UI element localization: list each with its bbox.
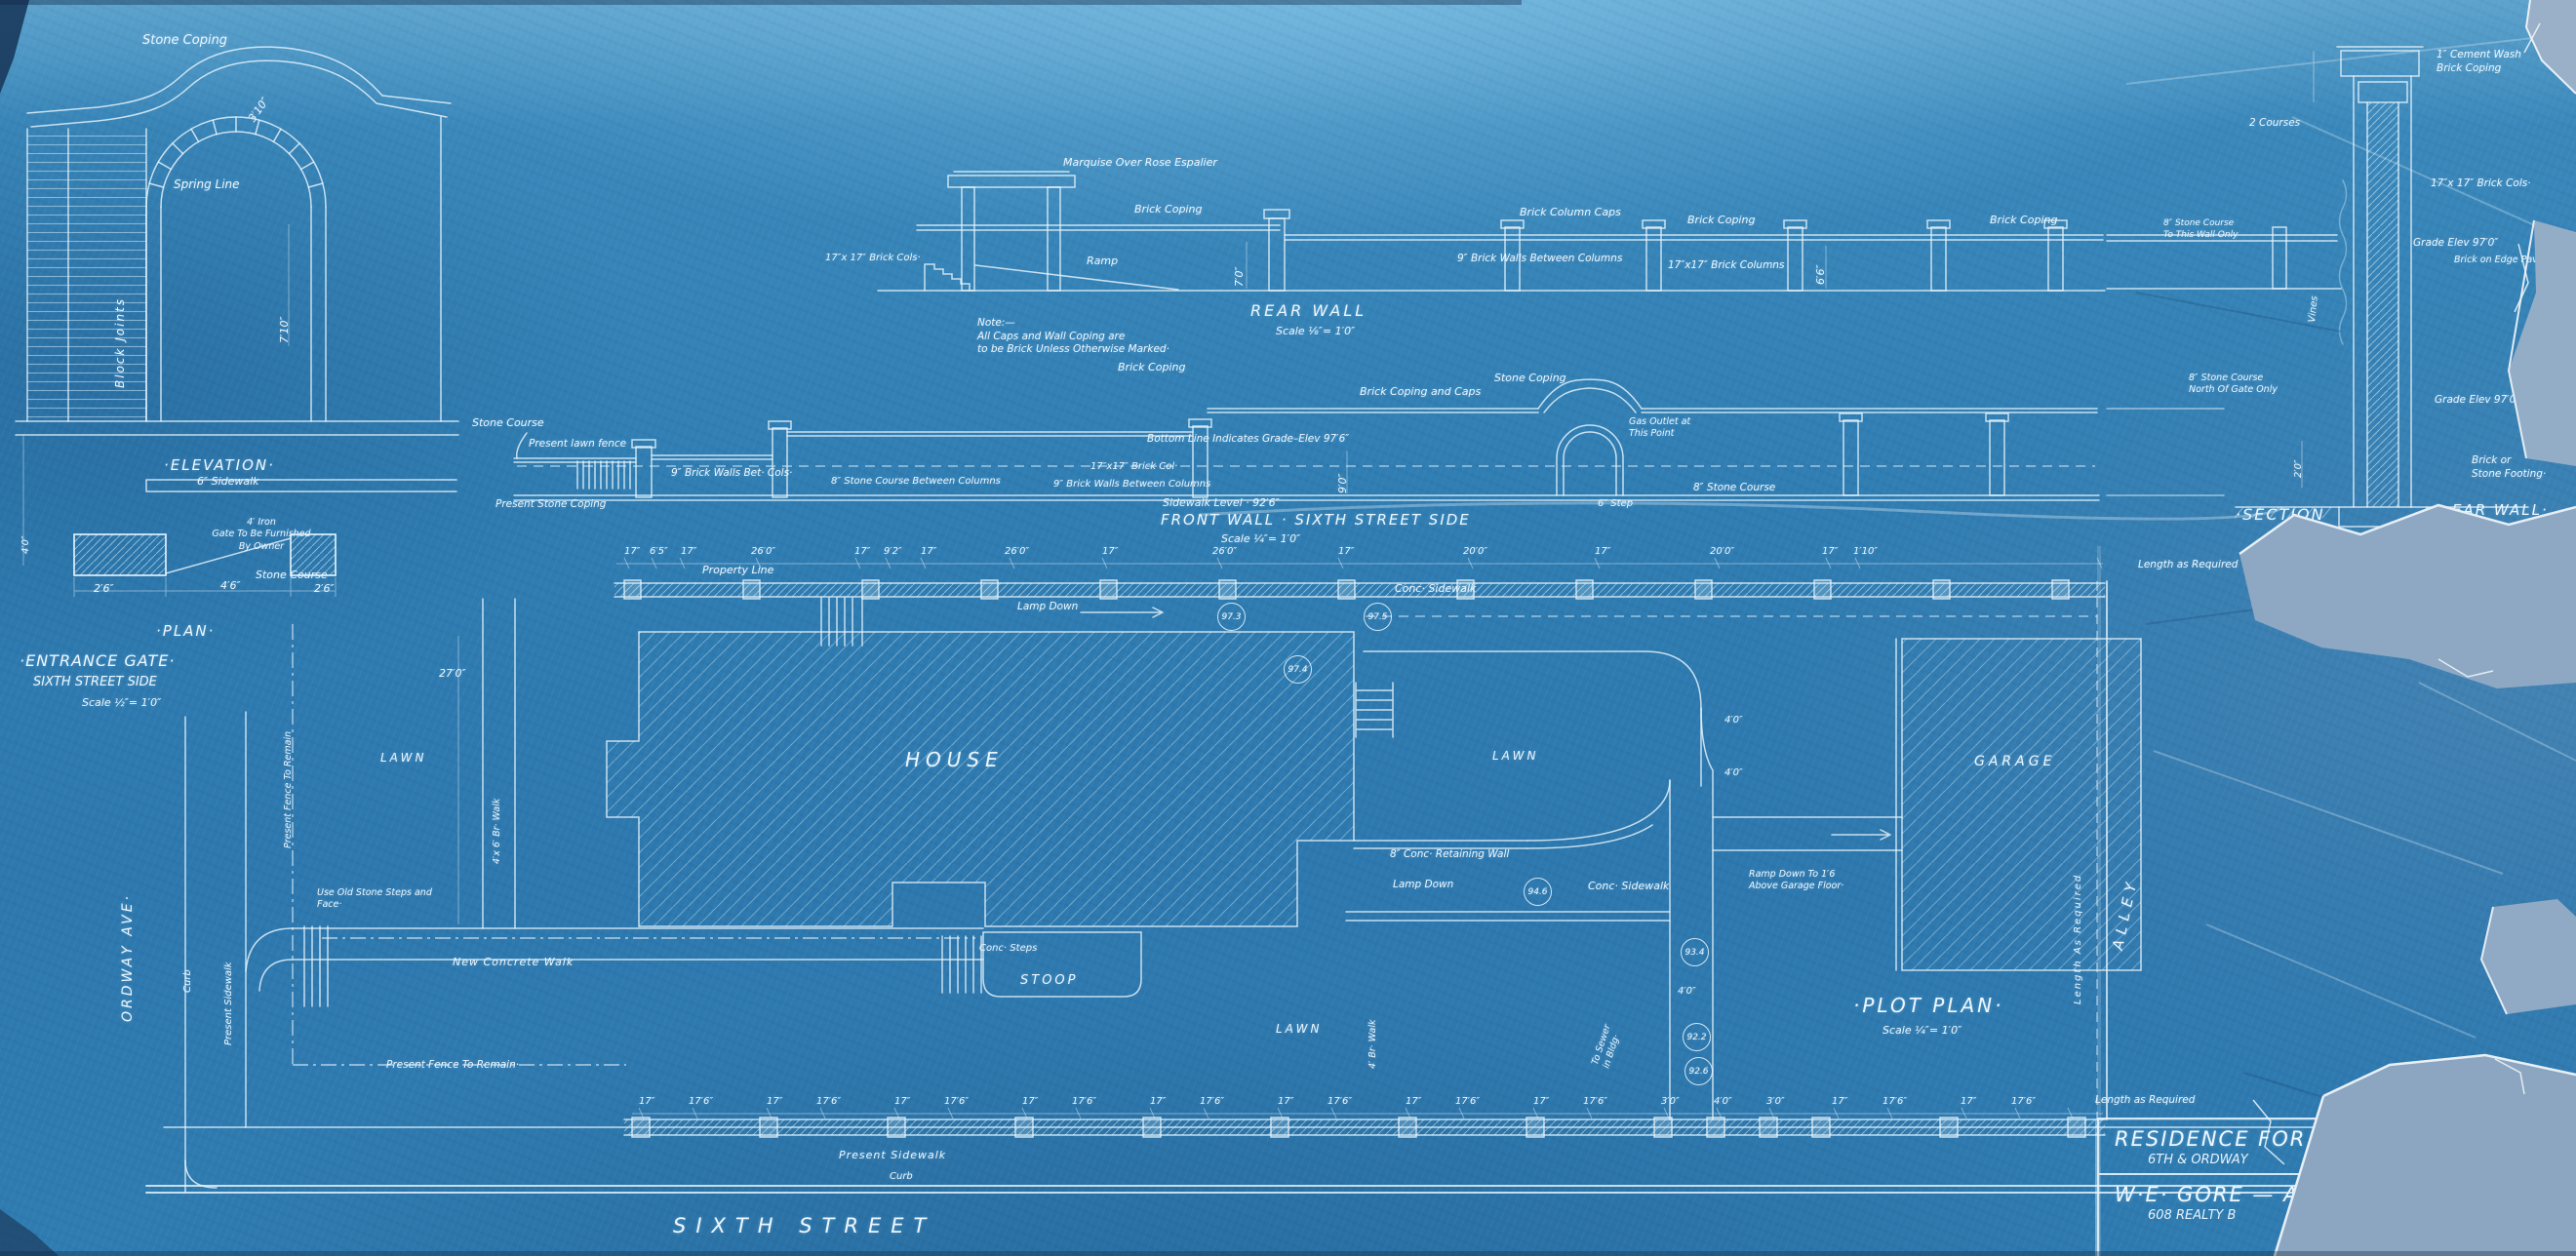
rearwall-scale: Scale ⅛″= 1′0″	[1276, 325, 1355, 338]
plot-bottom-dim-13: 17′6″	[1455, 1096, 1480, 1107]
plot-dim-4-0-c: 4′0″	[1678, 985, 1696, 998]
gate-dim-4-6: 4′6″	[220, 579, 241, 593]
plot-top-dim-13: 20′0″	[1710, 546, 1734, 557]
plot-top-dim-8: 17″	[1102, 546, 1118, 557]
gate-label-sidewalk: 6″ Sidewalk	[197, 475, 259, 489]
frontwall-label-present-fence: Present lawn fence	[529, 438, 626, 451]
plot-top-dim-9: 26′0″	[1212, 546, 1237, 557]
frontwall-label-sidewalk-level: Sidewalk Level · 92′6″	[1163, 496, 1280, 510]
gate-label-block-joints: Block Joints	[113, 297, 129, 388]
plot-bottom-dim-22: 17′6″	[2011, 1096, 2036, 1107]
plot-bottom-dim-9: 17′6″	[1200, 1096, 1224, 1107]
plot-dim-4-0-a: 4′0″	[1724, 714, 1743, 726]
gate-title: ·ENTRANCE GATE·	[20, 651, 175, 672]
project-title: RESIDENCE FOR	[2115, 1127, 2372, 1151]
rearwall-label-brick-coping-left: Brick Coping	[1134, 203, 1202, 216]
plot-label-lawn-mid: LAWN	[1492, 749, 1539, 765]
spot-elevation-0: 97.3	[1217, 603, 1246, 631]
plot-label-conc-sidewalk-mid: Conc· Sidewalk	[1588, 880, 1669, 893]
section-label-grade-elev-upper: Grade Elev 97′0″	[2413, 237, 2498, 251]
plot-label-walk-left-v: 4′x 6′ Br· Walk	[492, 799, 503, 864]
plot-top-dim-12: 17″	[1595, 546, 1610, 557]
frontwall-label-grade-note: Bottom Line Indicates Grade–Elev 97′6″	[1147, 433, 1349, 447]
plot-bottom-dim-6: 17″	[1022, 1096, 1038, 1107]
street-label-ordway: ORDWAY AVE·	[119, 893, 137, 1022]
plot-bottom-dim-16: 3′0″	[1661, 1096, 1680, 1107]
plot-bottom-dim-19: 17″	[1832, 1096, 1847, 1107]
spot-elevation-1: 97.4	[1284, 655, 1312, 684]
frontwall-scale: Scale ¼″= 1′0″	[1221, 532, 1300, 546]
plot-top-dim-6: 17″	[921, 546, 936, 557]
street-label-ordway-curb: Curb	[181, 969, 194, 993]
plot-label-retaining-wall: 8″ Conc· Retaining Wall	[1390, 848, 1509, 862]
section-title-left: ·SECTION	[2236, 505, 2325, 526]
plot-bottom-dim-12: 17″	[1406, 1096, 1421, 1107]
rearwall-label-brick-coping-right: Brick Coping	[1990, 214, 2057, 227]
plot-bottom-dim-4: 17″	[894, 1096, 910, 1107]
plot-label-lamp-down-top: Lamp Down	[1017, 601, 1078, 614]
gate-dim-2-6-right: 2′6″	[314, 582, 335, 596]
rearwall-label-column-caps: Brick Column Caps	[1520, 206, 1621, 219]
architect-address: 608 REALTY B	[2148, 1208, 2372, 1223]
title-block-architect-row: W·E· GORE — ARCH 608 REALTY B	[2099, 1175, 2384, 1229]
plot-top-dim-4: 17″	[854, 546, 870, 557]
plot-bottom-dim-3: 17′6″	[816, 1096, 841, 1107]
frontwall-label-17x17-cols: 17″x17″ Brick Col·	[1090, 460, 1177, 473]
section-label-stone-course-a: 8″ Stone Course To This Wall Only	[2163, 218, 2238, 241]
frontwall-label-9in-walls: 9″ Brick Walls Bet· Cols·	[671, 467, 792, 481]
frontwall-label-stone-course: Stone Course	[472, 416, 544, 430]
spot-elevation-5: 92.2	[1683, 1023, 1711, 1051]
gate-label-stone-course: Stone Course	[256, 569, 328, 582]
plot-top-dim-0: 17″	[624, 546, 640, 557]
spot-elevation-2: 97.5	[1364, 603, 1392, 631]
plot-label-fence-remain: Present Fence To Remain·	[386, 1059, 519, 1073]
plot-label-lawn-bottom: LAWN	[1276, 1022, 1323, 1038]
plot-bottom-dim-21: 17″	[1961, 1096, 1976, 1107]
frontwall-label-gas: Gas Outlet at This Point	[1629, 416, 1690, 441]
plot-label-conc-steps: Conc· Steps	[979, 942, 1037, 955]
gate-dim-4-0: 4′0″	[20, 535, 32, 554]
frontwall-label-brick-coping: Brick Coping	[1118, 361, 1185, 374]
gate-subtitle: SIXTH STREET SIDE	[33, 675, 157, 691]
section-label-cement-wash: 1″ Cement Wash Brick Coping	[2437, 49, 2521, 75]
project-location: 6TH & ORDWAY	[2148, 1153, 2372, 1167]
gate-label-plan: ·PLAN·	[156, 622, 215, 642]
rearwall-label-ramp: Ramp	[1087, 255, 1118, 268]
plot-bottom-dim-18: 3′0″	[1766, 1096, 1785, 1107]
gate-label-elevation: ·ELEVATION·	[164, 456, 275, 476]
rearwall-label-17x17-cols: 17″x17″ Brick Columns	[1668, 259, 1784, 273]
street-label-sixth-street: SIXTH STREET	[673, 1213, 935, 1239]
title-block-project-row: RESIDENCE FOR 6TH & ORDWAY	[2099, 1119, 2384, 1175]
frontwall-label-stone-coping: Stone Coping	[1494, 372, 1566, 385]
frontwall-label-9in-between: 9″ Brick Walls Between Columns	[1053, 478, 1210, 491]
street-label-curb: Curb	[890, 1170, 913, 1183]
annotation-layer: Stone Coping3′10″Spring LineBlock Joints…	[0, 0, 2576, 1256]
gate-dim-2-6-left: 2′6″	[94, 582, 114, 596]
rearwall-label-17x17-left: 17″x 17″ Brick Cols·	[825, 252, 921, 264]
frontwall-label-step: 6″ Step	[1598, 497, 1633, 510]
plot-top-dim-11: 20′0″	[1463, 546, 1487, 557]
frontwall-label-8in-course-b: 8″ Stone Course	[1693, 482, 1775, 495]
section-label-vines: Vines	[2306, 295, 2321, 324]
plot-label-lamp-down-mid: Lamp Down	[1393, 879, 1453, 892]
plot-bottom-dim-8: 17″	[1150, 1096, 1166, 1107]
rearwall-label-9in-walls: 9″ Brick Walls Between Columns	[1457, 253, 1622, 266]
plot-dim-4-0-b: 4′0″	[1724, 766, 1743, 779]
plot-bottom-dim-10: 17″	[1278, 1096, 1293, 1107]
plot-label-conc-sidewalk-top: Conc· Sidewalk	[1395, 582, 1476, 596]
plot-label-ramp-garage: Ramp Down To 1′6 Above Garage Floor·	[1749, 869, 1843, 893]
plot-bottom-dim-20: 17′6″	[1882, 1096, 1907, 1107]
frontwall-title: FRONT WALL · SIXTH STREET SIDE	[1161, 511, 1471, 530]
plot-bottom-dim-14: 17″	[1533, 1096, 1549, 1107]
plot-bottom-dim-17: 4′0″	[1714, 1096, 1732, 1107]
plot-label-length-required-top: Length as Required	[2138, 559, 2238, 572]
rearwall-title: REAR WALL	[1250, 301, 1367, 322]
plot-bottom-dim-1: 17′6″	[689, 1096, 713, 1107]
title-block: RESIDENCE FOR 6TH & ORDWAY W·E· GORE — A…	[2097, 1118, 2386, 1256]
spot-elevation-6: 92.6	[1684, 1057, 1713, 1085]
gate-arch-dim-3-10: 3′10″	[246, 95, 273, 125]
gate-label-stone-coping: Stone Coping	[142, 33, 227, 50]
plot-top-dim-5: 9′2″	[884, 546, 902, 557]
plot-label-property-line: Property Line	[702, 564, 773, 577]
section-label-grade-elev: Grade Elev 97′0″	[2435, 394, 2519, 408]
plot-bottom-dim-7: 17′6″	[1072, 1096, 1096, 1107]
rearwall-label-brick-coping-mid: Brick Coping	[1687, 214, 1755, 227]
gate-label-spring-line: Spring Line	[174, 177, 240, 193]
rearwall-note: Note:— All Caps and Wall Coping are to b…	[977, 317, 1169, 357]
plot-label-new-walk: New Concrete Walk	[453, 956, 574, 969]
section-label-2-courses: 2 Courses	[2249, 117, 2300, 131]
frontwall-label-present-coping: Present Stone Coping	[495, 498, 606, 512]
plot-label-lawn-left: LAWN	[380, 751, 427, 766]
section-label-footing: Brick or Stone Footing·	[2472, 454, 2546, 481]
architect-name: W·E· GORE — ARCH	[2115, 1183, 2372, 1206]
plot-top-dim-7: 26′0″	[1005, 546, 1029, 557]
section-label-brick-edge: Brick on Edge Paving·	[2454, 255, 2555, 266]
plot-top-dim-10: 17″	[1338, 546, 1354, 557]
plot-label-alley: ALLEY	[2109, 876, 2143, 952]
section-label-stone-course-b: 8″ Stone Course North Of Gate Only	[2189, 373, 2278, 397]
plot-bottom-dim-5: 17′6″	[944, 1096, 969, 1107]
blueprint-sheet: Stone Coping3′10″Spring LineBlock Joints…	[0, 0, 2576, 1256]
street-label-present-sidewalk: Present Sidewalk	[839, 1149, 946, 1162]
gate-scale: Scale ½″= 1′0″	[82, 696, 161, 710]
frontwall-label-coping-caps: Brick Coping and Caps	[1360, 385, 1481, 399]
plot-top-dim-1: 6′5″	[650, 546, 668, 557]
gate-note-gate: 4′ Iron Gate To Be Furnished By Owner	[183, 517, 339, 553]
plot-label-length-required-v: Length As Required	[2072, 874, 2084, 1004]
plot-bottom-dim-2: 17″	[767, 1096, 782, 1107]
plot-top-dim-15: 1′10″	[1853, 546, 1878, 557]
section-label-17x17: 17″x 17″ Brick Cols·	[2431, 177, 2531, 191]
gate-dim-7-10: 7′10″	[278, 316, 292, 343]
plot-top-dim-14: 17″	[1822, 546, 1838, 557]
plot-top-dim-2: 17″	[681, 546, 696, 557]
spot-elevation-3: 94.6	[1524, 878, 1552, 906]
plot-label-house: HOUSE	[905, 747, 1004, 772]
street-label-ordway-sidewalk: Present Sidewalk	[222, 962, 235, 1045]
plot-top-dim-3: 26′0″	[751, 546, 775, 557]
plot-bottom-dim-0: 17″	[639, 1096, 654, 1107]
plot-bottom-dim-15: 17′6″	[1583, 1096, 1607, 1107]
frontwall-label-8in-course: 8″ Stone Course Between Columns	[831, 475, 1001, 488]
spot-elevation-4: 93.4	[1681, 938, 1709, 966]
frontwall-dim-9-0: 9′0″	[1336, 473, 1350, 493]
section-title-right: EAR WALL·	[2452, 501, 2549, 521]
plot-label-stoop: STOOP	[1020, 973, 1079, 990]
plot-bottom-dim-11: 17′6″	[1328, 1096, 1352, 1107]
plot-dim-27-0: 27′0″	[439, 667, 466, 681]
plot-label-to-sewer: To Sewer in Bldg·	[1590, 1023, 1626, 1070]
plot-title: ·PLOT PLAN·	[1853, 993, 2003, 1018]
rearwall-dim-7-0: 7′0″	[1233, 266, 1247, 287]
rearwall-label-espalier: Marquise Over Rose Espalier	[1063, 156, 1217, 170]
plot-label-walk-right-v: 4′ Br· Walk	[1367, 1019, 1379, 1069]
section-dim-2-0: 2′0″	[2292, 459, 2305, 478]
plot-label-garage: GARAGE	[1974, 753, 2055, 770]
plot-label-old-steps: Use Old Stone Steps and Face·	[317, 887, 432, 912]
rearwall-dim-6-6: 6′6″	[1814, 264, 1828, 285]
plot-label-length-required-bottom: Length as Required	[2095, 1094, 2195, 1108]
plot-label-fence-left-v: Present Fence To Remain	[283, 731, 295, 848]
plot-scale: Scale ¼″= 1′0″	[1882, 1024, 1962, 1038]
